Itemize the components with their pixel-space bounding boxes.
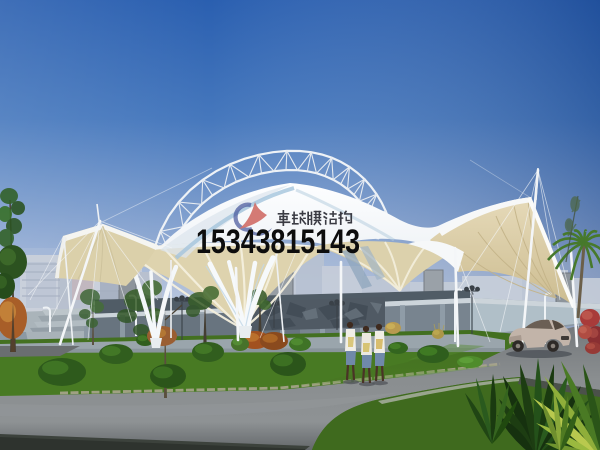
svg-text:15343815143: 15343815143: [196, 223, 360, 261]
